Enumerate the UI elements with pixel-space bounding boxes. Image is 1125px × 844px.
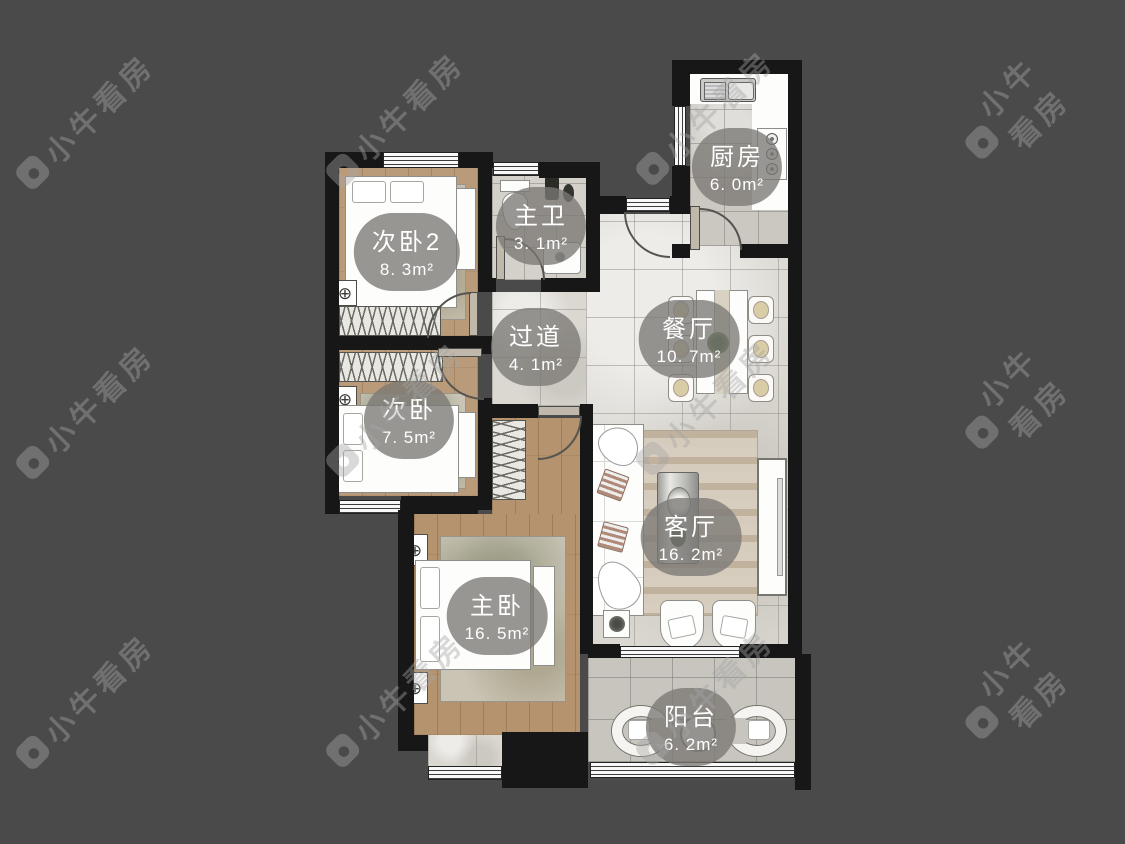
- wall-segment: [398, 735, 428, 751]
- dining-chair: [748, 335, 774, 363]
- room-label-bedroom: 次卧 7. 5m²: [364, 381, 454, 459]
- watermark: 小牛看房: [7, 42, 163, 198]
- wall-segment: [672, 60, 802, 74]
- pillow: [390, 181, 424, 203]
- wall-segment: [478, 162, 492, 292]
- wall-segment: [541, 278, 600, 292]
- bedroom-door: [438, 348, 482, 357]
- room-area: 10. 7m²: [657, 347, 722, 367]
- room-name: 主卫: [514, 196, 568, 231]
- wall-segment: [588, 644, 620, 658]
- watermark: 小牛看房: [7, 622, 163, 778]
- room-area: 7. 5m²: [382, 428, 436, 448]
- dining-chair: [748, 296, 774, 324]
- wall-segment: [398, 510, 414, 750]
- watermark-text: 小牛看房: [33, 332, 163, 462]
- watermark-text: 小牛看房: [966, 331, 1083, 448]
- dining-chair: [668, 374, 694, 402]
- pillow: [352, 181, 386, 203]
- watermark: 小牛看房: [941, 41, 1083, 183]
- pillow: [343, 450, 363, 482]
- wall-segment: [478, 404, 538, 418]
- tv-cabinet: [757, 458, 787, 596]
- watermark-text: 小牛看房: [343, 40, 473, 170]
- room-name: 餐厅: [657, 309, 722, 344]
- room-area: 16. 5m²: [465, 624, 530, 644]
- room-label-hallway: 过道 4. 1m²: [491, 308, 581, 386]
- window: [339, 500, 401, 514]
- room-area: 8. 3m²: [372, 260, 442, 280]
- room-label-master-bath: 主卫 3. 1m²: [496, 187, 586, 265]
- room-area: 16. 2m²: [659, 545, 724, 565]
- floor-bay-window: [428, 735, 502, 768]
- room-name: 过道: [509, 317, 563, 352]
- brand-bull-icon: [13, 153, 53, 193]
- pillow: [420, 616, 440, 662]
- brand-bull-icon: [962, 122, 1002, 162]
- room-name: 客厅: [659, 507, 724, 542]
- watermark-text: 小牛看房: [966, 621, 1083, 738]
- bay-window: [428, 766, 502, 780]
- wall-segment: [788, 60, 802, 654]
- wardrobe-master: [492, 420, 526, 500]
- room-name: 次卧2: [372, 222, 442, 257]
- brand-bull-icon: [13, 733, 53, 773]
- room-label-kitchen: 厨房 6. 0m²: [692, 128, 782, 206]
- wall-segment: [325, 152, 383, 168]
- room-label-bedroom2: 次卧2 8. 3m²: [354, 213, 460, 291]
- watermark: 小牛看房: [941, 331, 1083, 473]
- wall-segment: [325, 152, 339, 514]
- wall-segment: [596, 196, 626, 214]
- window: [383, 152, 459, 168]
- watermark-text: 小牛看房: [33, 622, 163, 752]
- plant-stand: [603, 610, 630, 638]
- wall-segment: [740, 644, 795, 658]
- wall-segment: [586, 162, 600, 292]
- pillow: [420, 567, 440, 609]
- wall-segment: [672, 244, 690, 258]
- brand-bull-icon: [962, 412, 1002, 452]
- room-label-living: 客厅 16. 2m²: [641, 498, 742, 576]
- wall-segment: [672, 60, 690, 106]
- room-name: 厨房: [710, 137, 764, 172]
- armchair: [712, 600, 756, 650]
- kitchen-door: [690, 206, 700, 250]
- room-label-master-bedroom: 主卧 16. 5m²: [447, 577, 548, 655]
- pillow: [343, 413, 363, 445]
- brand-bull-icon: [323, 731, 363, 771]
- wall-segment: [795, 654, 811, 790]
- brand-bull-icon: [13, 443, 53, 483]
- room-area: 6. 0m²: [710, 175, 764, 195]
- floorplan-canvas: ⊕ ⊕ ⊕ ⊕: [0, 0, 1125, 844]
- watermark: 小牛看房: [941, 621, 1083, 763]
- entry-threshold: [626, 198, 670, 212]
- sliding-door: [620, 646, 740, 658]
- watermark-text: 小牛看房: [966, 41, 1083, 158]
- room-name: 次卧: [382, 390, 436, 425]
- room-area: 6. 2m²: [664, 735, 718, 755]
- dining-chair: [748, 374, 774, 402]
- brand-bull-icon: [962, 702, 1002, 742]
- room-label-dining: 餐厅 10. 7m²: [639, 300, 740, 378]
- wall-segment: [478, 278, 496, 292]
- room-name: 阳台: [664, 697, 718, 732]
- wall-segment: [502, 732, 588, 788]
- wardrobe-bedroom: [339, 352, 443, 382]
- pillow: [748, 720, 770, 740]
- window: [493, 162, 539, 176]
- cabinet-bedroom: [458, 412, 476, 478]
- watermark-text: 小牛看房: [33, 42, 163, 172]
- wall-segment: [580, 404, 593, 654]
- armchair: [660, 600, 704, 650]
- room-area: 3. 1m²: [514, 234, 568, 254]
- brand-bull-icon: [633, 149, 673, 189]
- room-name: 主卧: [465, 586, 530, 621]
- room-area: 4. 1m²: [509, 355, 563, 375]
- master-door: [538, 406, 580, 416]
- window: [674, 106, 686, 166]
- watermark: 小牛看房: [7, 332, 163, 488]
- wall-segment: [672, 166, 690, 214]
- kitchen-sink: [700, 78, 756, 102]
- wardrobe-bedroom2: [339, 306, 441, 336]
- room-label-balcony: 阳台 6. 2m²: [646, 688, 736, 766]
- wall-segment: [740, 244, 788, 258]
